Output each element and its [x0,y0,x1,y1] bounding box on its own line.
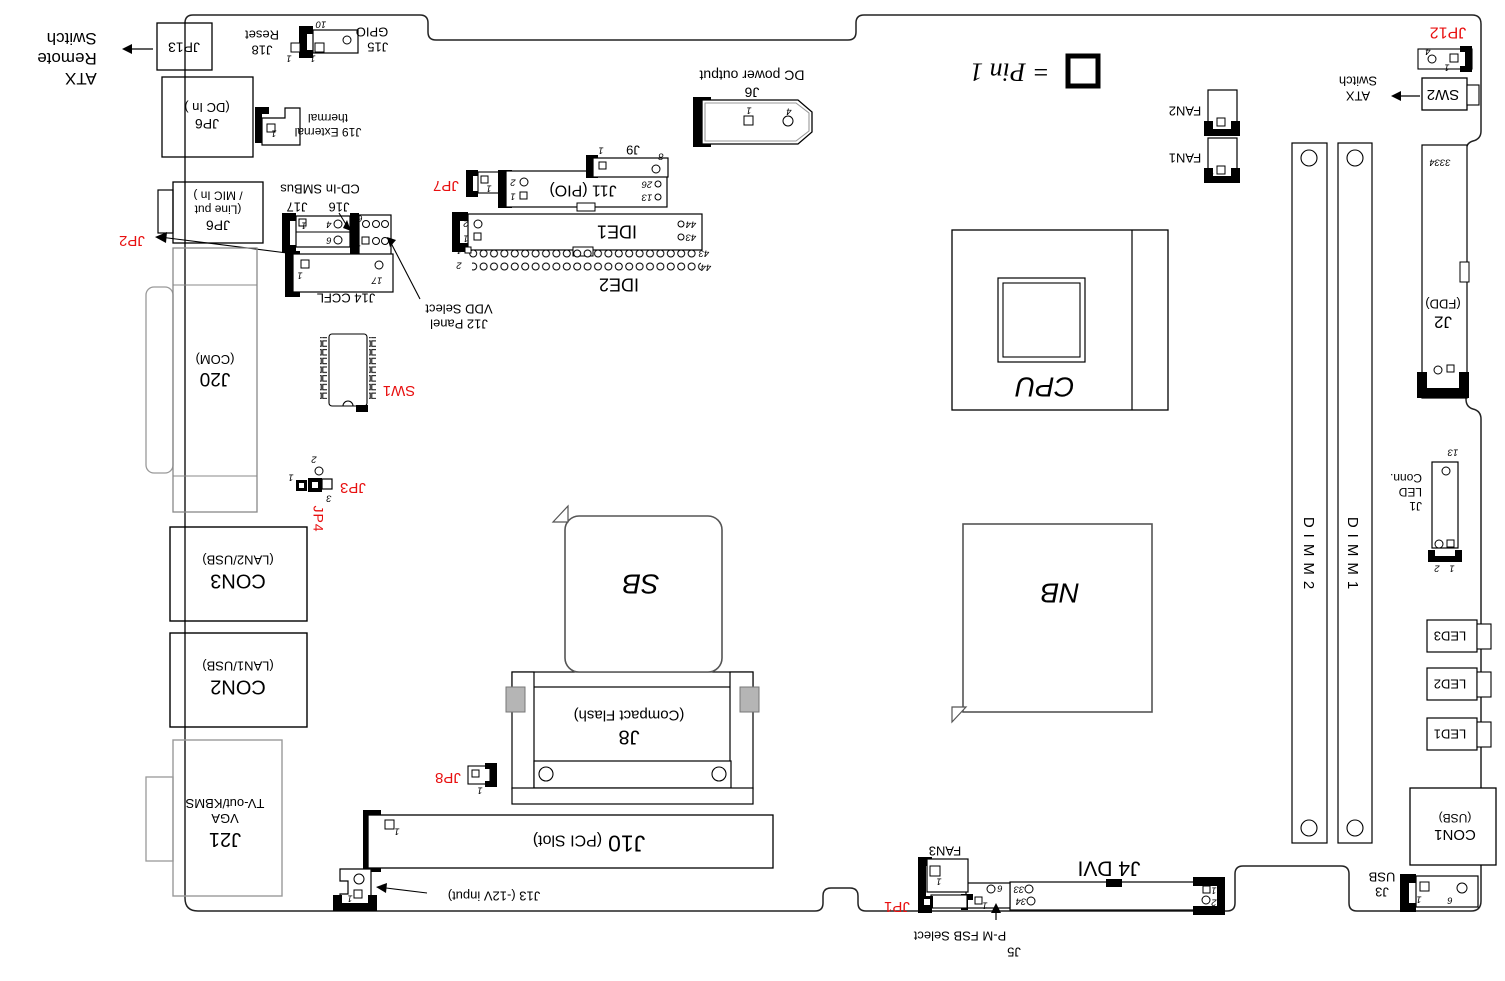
ide1-pin43: 43 [686,231,697,242]
j5-pin1: 1 [982,899,987,910]
j6-pin4: 4 [786,105,791,116]
j2-label: J2 (FDD) [1425,296,1460,331]
j4-connector [1010,877,1225,915]
legend-square [1068,56,1098,86]
fan1-label: FAN1 [1169,150,1202,165]
ide1-pin44: 44 [686,218,697,229]
j11-pin1: 1 [510,190,515,201]
led2-label: LED2 [1434,676,1467,691]
ide2-pin43: 43 [699,247,710,258]
fan2-label: FAN2 [1169,103,1202,118]
j1-pin1: 1 [1449,562,1454,573]
j17-pin6: 6 [326,234,331,245]
j3-pin6: 6 [1447,894,1452,905]
fan3-pin1: 1 [936,875,941,886]
j9-connector [586,155,668,178]
jp12-pin1: 1 [1444,61,1449,72]
j19-label: J19 External thermal [295,111,362,139]
j17-pin4: 4 [326,218,331,229]
jp2-label: JP2 [119,231,145,249]
jp12-pin4: 4 [1425,45,1430,56]
con3-label: CON3 (LAN2/USB) [202,553,274,592]
jp13-label: JP13 [168,39,200,56]
j18-pin1b: 1 [310,52,315,63]
board-outline [185,15,1481,911]
j12-panel-label: J12 Panel VDD Select [425,301,492,332]
j9-pin8: 8 [658,150,663,161]
jp8-connector [468,763,497,787]
jp3-label: JP3 [340,478,366,496]
j1-label: J1 LED Conn. [1390,471,1422,513]
j5-label: J5 [1007,944,1021,959]
j3-connector [1400,874,1478,912]
jp12-label: JP12 [1430,22,1466,41]
j11-label: J11 (PIO) [549,180,616,199]
j14-pin1: 1 [297,269,302,280]
j11-pin2: 2 [510,176,515,187]
atx-remote-switch-label: ATX Remote Switch [37,28,97,88]
j1-pin2: 2 [1434,562,1439,573]
j11-pin26: 26 [642,178,653,189]
legend-text: = Pin 1 [970,56,1050,87]
fan2-connector [1204,90,1240,136]
j18-j15-connectors [291,26,358,58]
pm-fsb-label: P-M FSB Select [914,928,1006,943]
jp4-label: JP4 [310,505,327,532]
j3-label: J3 USB [1369,869,1396,900]
j21-label: J21 VGA TV-out/KBMS [186,796,265,850]
ide2-connector [465,246,701,272]
jp7-label: JP7 [433,176,459,194]
j11-pin13: 13 [642,191,653,202]
con2-label: CON2 (LAN1/USB) [202,659,274,698]
j1-pin13: 13 [1448,446,1459,457]
ide1-label: IDE1 [597,220,637,241]
cdin-smbus-label: CD-In SMBus [280,181,359,196]
j6-label: J6 DC power output [699,67,804,100]
ide2-pin44: 44 [701,261,712,272]
j13-label: J13 (-12V input) [448,888,541,903]
sw1-label: SW1 [383,381,416,399]
j14-pin17: 17 [372,274,383,285]
fan3-connector [918,857,968,913]
j4-pin2: 2 [1211,896,1216,907]
j19-connector [255,107,300,145]
j4-pin33: 33 [1014,883,1025,894]
j4-pin1: 1 [1211,884,1216,895]
cpu-label: CPU [1015,370,1074,403]
j18-label: J18 Reset [245,27,279,58]
ide1-pin1: 1 [463,232,468,243]
j1-connector [1428,462,1462,562]
j10-label: J10(PCI Slot) [533,829,645,856]
j10-pin1: 1 [394,825,399,836]
j18-pin1: 1 [286,52,291,63]
dimm2-label: DIMM2 [1299,517,1317,595]
jp8-label: JP8 [435,768,461,786]
j9-pin1: 1 [598,144,603,155]
j14-label: J14 CCFL [317,290,376,305]
j20-label: J20 (COM) [196,351,235,389]
jp7-pin1: 1 [486,182,491,193]
nb-chip [952,524,1152,722]
j6-connector [693,97,812,147]
ide1-pin2: 2 [463,217,468,228]
sw2-label: SW2 [1427,85,1460,103]
jp6-audio-label: JP6 (Line put / MIC In ) [193,189,242,234]
j6-pin1: 1 [746,104,751,115]
led1-label: LED1 [1434,726,1467,741]
ide2-label: IDE2 [599,273,639,294]
jp3-pin3: 3 [326,492,331,503]
jp1-label: JP1 [884,897,910,915]
j15-label: J15 GPIO [356,24,389,55]
j13-pin1: 1 [347,892,352,903]
jp7-connector [466,170,500,197]
sw1-dip [320,334,376,412]
nb-label: NB [1041,576,1080,609]
jp3-jp4-cluster [296,467,332,492]
ide2-pin1: 1 [456,244,461,255]
j16-label: J16 [329,199,350,214]
j4-pin34: 34 [1016,895,1027,906]
j17-label: J17 [287,199,308,214]
jp6-dc-label: JP6 (DC In ) [184,100,230,132]
j16-pin1: 1 [355,242,360,253]
dimm1-label: DIMM1 [1343,517,1361,595]
dimm-slots [1292,143,1372,843]
j5-pin6: 6 [997,882,1002,893]
atx-switch-label: ATX Switch [1339,73,1377,104]
led3-label: LED3 [1434,628,1467,643]
fan3-label: FAN3 [929,843,962,858]
jp8-pin1: 1 [477,784,482,795]
ide2-pin2: 2 [456,259,461,270]
jp3-pin1: 1 [288,471,293,482]
j2-connector [1417,145,1469,398]
j16-pin6: 6 [357,212,362,223]
j3-pin1: 1 [1416,893,1421,904]
j4-label: J4 DVI [1077,855,1140,880]
con1-label: CON1 (USB) [1434,811,1476,843]
j17-connector [282,213,350,253]
j2-pins-33-34: 3334 [1429,156,1450,167]
j19-pin1: 1 [271,127,276,138]
j17-pin1: 1 [301,219,306,230]
j9-label: J9 [626,142,640,157]
sb-label: SB [622,567,659,600]
j8-label: J8 (Compact Flash) [574,706,685,747]
motherboard-diagram: ATX Remote Switch JP13 J18 Reset 1 1 J15… [0,0,1505,981]
jp3-pin2: 2 [311,453,316,464]
j15-pin10: 10 [316,18,327,29]
fan1-pin1: 1 [1208,170,1213,181]
j13-connector [333,869,427,911]
